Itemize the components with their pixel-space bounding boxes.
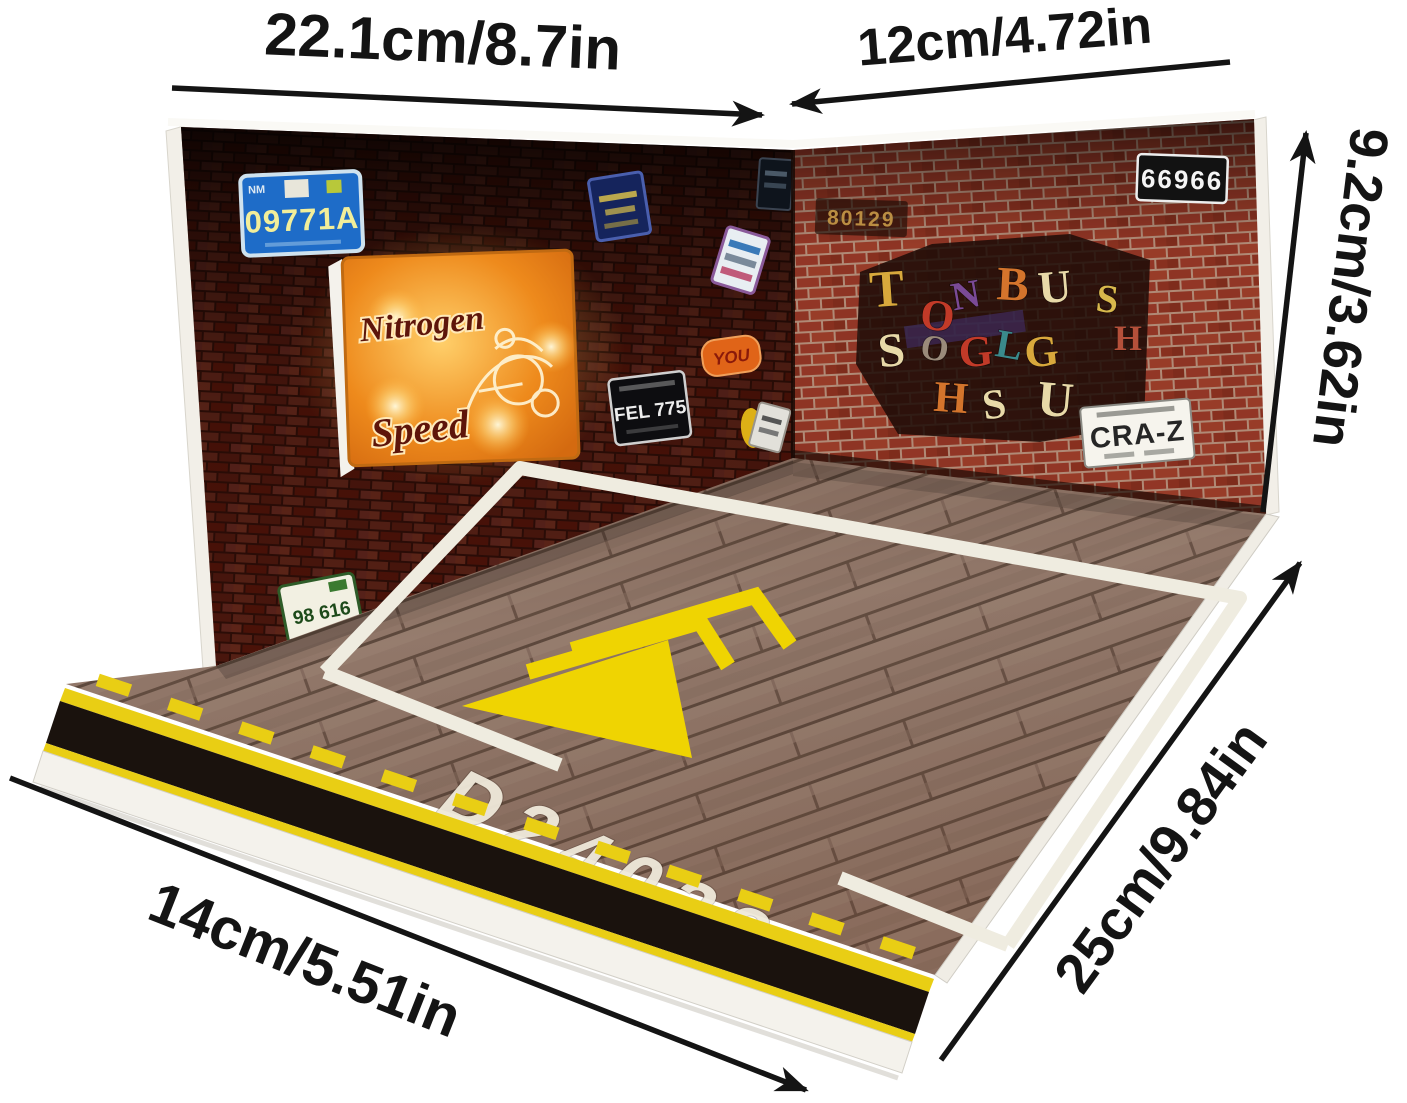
plate-66966-number: 66966 — [1140, 163, 1223, 196]
collage-letter: S — [875, 323, 907, 379]
dim-arrow-back-depth — [792, 62, 1230, 104]
dim-label-wall-height: 9.2cm/3.62in — [1301, 125, 1400, 451]
dim-arrow-top-width — [172, 88, 762, 115]
license-plate-dark-mini — [757, 158, 794, 210]
collage-letter: T — [868, 260, 907, 319]
license-plate-blue: 09771A NM — [240, 171, 363, 256]
collage-letter: B — [995, 257, 1030, 312]
license-plate-black-66966: 66966 — [1136, 154, 1228, 203]
collage-letter: S — [1094, 275, 1121, 322]
product-screenshot: { "dimensions": { "top_width": "22.1cm/8… — [0, 0, 1407, 1103]
license-plate-black-fel775: FEL 775 — [608, 371, 691, 446]
wall-tag-80129: 80129 — [815, 198, 908, 237]
plate-state: NM — [248, 184, 266, 197]
plate-emblem — [326, 180, 342, 194]
collage-letter: U — [1035, 370, 1076, 429]
right-wall: 80129 66966 TONBUSHSOGLGHSU CRA-Z — [793, 119, 1266, 517]
dim-label-back-depth: 12cm/4.72in — [855, 0, 1154, 78]
collage-letter: U — [1036, 260, 1074, 314]
collage-letter: H — [932, 372, 970, 423]
collage-letter: G — [957, 326, 995, 378]
sticker-orange-you: YOU — [700, 334, 762, 378]
diorama-product-image: 09771A NM — [0, 0, 1407, 1103]
plate-sticker — [284, 179, 309, 198]
plate-number: 09771A — [244, 200, 360, 240]
license-plate-navy — [588, 172, 651, 242]
collage-letter: H — [1114, 318, 1142, 358]
dim-label-top-width: 22.1cm/8.7in — [263, 0, 622, 83]
wall-tag-text: 80129 — [827, 206, 896, 231]
license-plate-craz: CRA-Z — [1080, 398, 1195, 467]
